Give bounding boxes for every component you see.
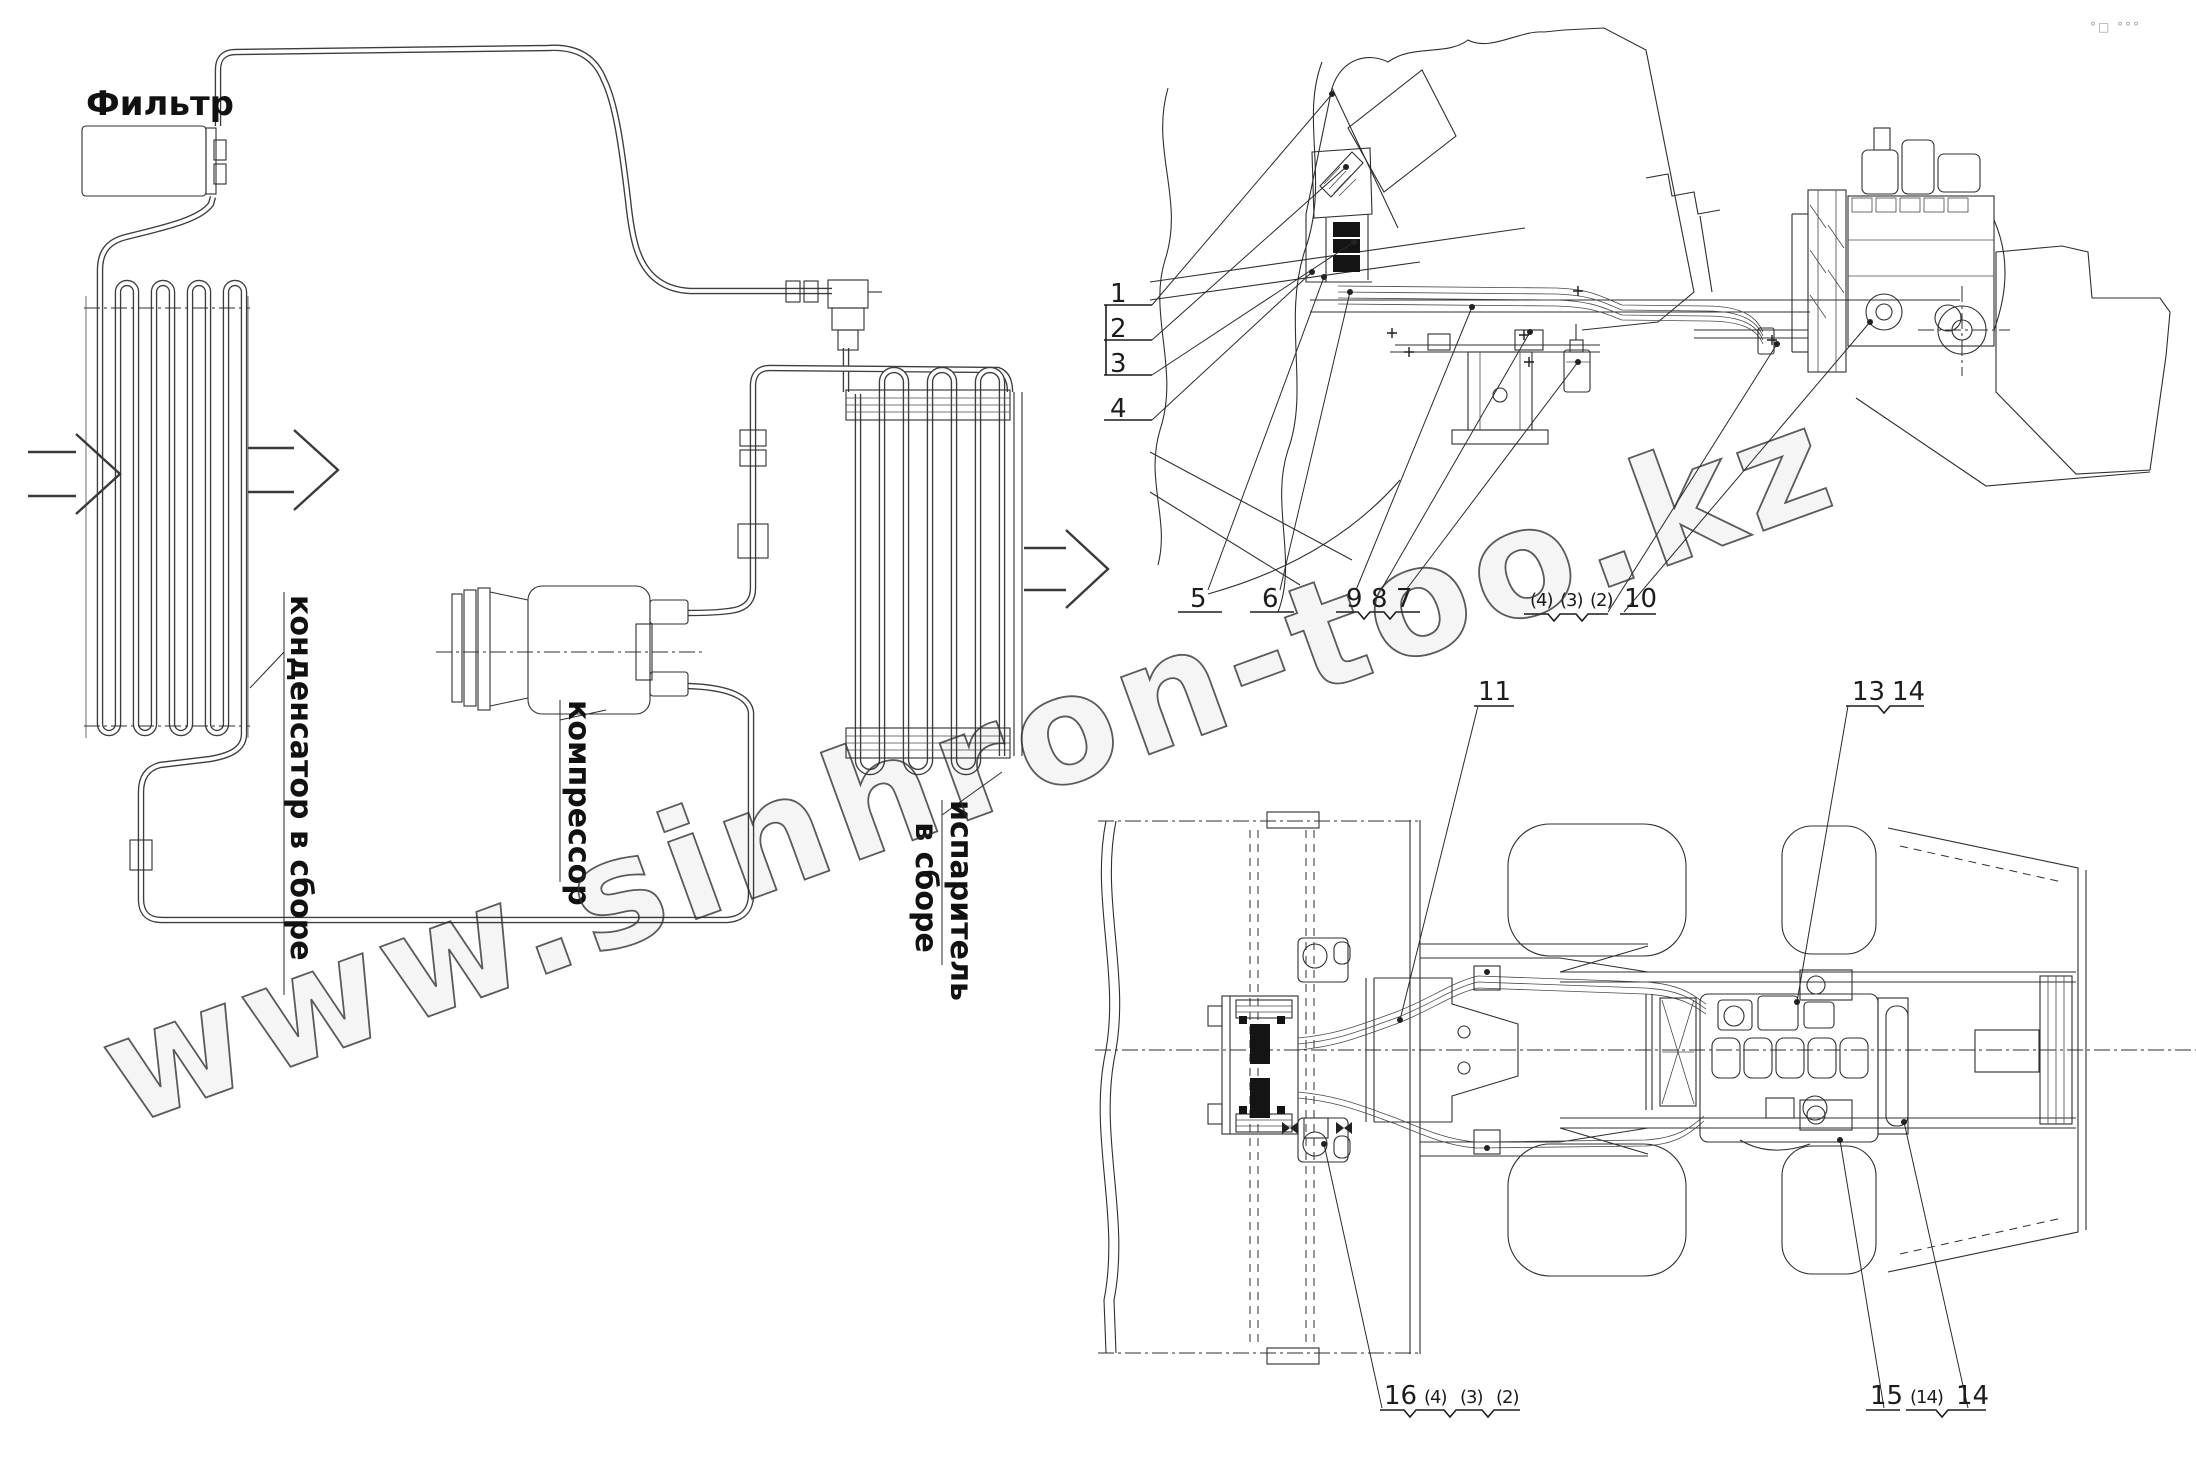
condenser-unit-plan: [1208, 996, 1352, 1138]
callout-6: 6: [1262, 586, 1279, 612]
callout-8: 8: [1371, 586, 1388, 612]
callout-marks: [1104, 91, 1986, 1417]
callout-1: 1: [1110, 281, 1127, 307]
evaporator-coil: [846, 370, 1022, 772]
callout-11: 11: [1478, 679, 1511, 705]
callout-paren-2: (2): [1590, 592, 1613, 610]
corner-marks: °□ °°°: [2090, 20, 2141, 34]
callout-bottom-paren-2: (2): [1496, 1389, 1519, 1407]
callout-3: 3: [1110, 351, 1127, 377]
callout-7: 7: [1396, 586, 1413, 612]
evaporator-label-line1: испаритель: [943, 800, 978, 975]
side-filter-canister: [1564, 324, 1590, 392]
filter-box: [82, 126, 226, 196]
leader-dots: [1309, 91, 1907, 1147]
engine-plan: [1646, 994, 2039, 1150]
callout-4: 4: [1110, 396, 1127, 422]
hoses-plan: [1298, 966, 1706, 1154]
compressor-label: компрессор: [561, 700, 596, 906]
compressor: [436, 586, 706, 714]
callout-16: 16: [1384, 1383, 1417, 1409]
side-hoses: [1338, 286, 1774, 354]
mount-cross-markers: [1387, 286, 1777, 367]
callout-paren-14: (14): [1910, 1389, 1943, 1407]
diagram-line-art: [0, 0, 2196, 1479]
callout-paren-4: (4): [1530, 592, 1553, 610]
condenser-label: конденсатор в сборе: [283, 595, 318, 961]
machine-side-view: [1150, 28, 2170, 612]
callout-paren-3: (3): [1560, 592, 1583, 610]
callout-2: 2: [1110, 316, 1127, 342]
engine-side: [1694, 128, 2005, 372]
callout-13: 13: [1852, 679, 1885, 705]
machine-top-view: [1095, 812, 2196, 1364]
callout-14: 14: [1892, 679, 1925, 705]
callout-14b: 14: [1956, 1383, 1989, 1409]
callout-5: 5: [1190, 586, 1207, 612]
rear-counterweight-side: [1856, 246, 2170, 486]
callout-10: 10: [1624, 586, 1657, 612]
parts-diagram-page: Фильтр конденсатор в сборе компрессор ис…: [0, 0, 2196, 1479]
callout-bottom-paren-4: (4): [1424, 1389, 1447, 1407]
filter-label: Фильтр: [86, 84, 234, 124]
callout-bottom-paren-3: (3): [1460, 1389, 1483, 1407]
cab-ac-unit: [1312, 148, 1372, 282]
evaporator-label: испаритель в сборе: [908, 800, 978, 975]
expansion-valve-fittings: [786, 280, 882, 350]
evaporator-label-line2: в сборе: [908, 800, 943, 975]
callout-15: 15: [1870, 1383, 1903, 1409]
callout-9: 9: [1346, 586, 1363, 612]
